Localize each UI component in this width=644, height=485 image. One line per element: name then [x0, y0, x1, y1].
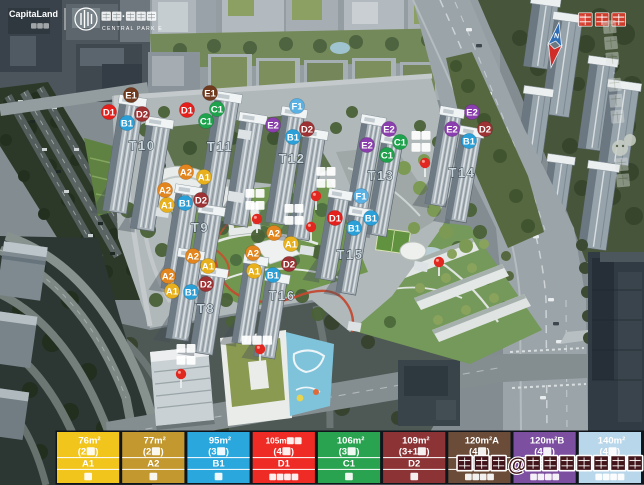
svg-text:E1: E1 [125, 90, 137, 101]
svg-text:(4: (4 [273, 447, 282, 458]
svg-text:): ) [291, 447, 294, 458]
svg-text:F1: F1 [291, 101, 303, 112]
svg-text:D2: D2 [408, 459, 420, 470]
svg-text:A2: A2 [268, 228, 280, 239]
svg-text:E2: E2 [361, 140, 373, 151]
svg-text:B1: B1 [287, 132, 300, 143]
svg-text:A2: A2 [162, 271, 174, 282]
svg-text:D2: D2 [301, 124, 313, 135]
svg-text:95m²: 95m² [209, 436, 231, 447]
svg-text:A1: A1 [202, 261, 215, 272]
svg-text:(3: (3 [208, 447, 216, 458]
svg-text:D2: D2 [283, 259, 295, 270]
svg-text:T15: T15 [337, 247, 364, 262]
svg-text:CENTRAL PARK E: CENTRAL PARK E [102, 26, 163, 32]
svg-text:C1: C1 [200, 116, 213, 127]
svg-text:C1: C1 [343, 459, 356, 470]
svg-text:T13: T13 [368, 168, 395, 183]
svg-text:109m²: 109m² [402, 436, 429, 447]
svg-text:106m²: 106m² [337, 436, 364, 447]
svg-text:@: @ [508, 455, 527, 476]
svg-text:120m²A: 120m²A [465, 436, 499, 447]
svg-text:E1: E1 [204, 88, 216, 99]
svg-text:B1: B1 [365, 213, 378, 224]
svg-text:E2: E2 [446, 124, 458, 135]
svg-text:D1: D1 [181, 105, 194, 116]
svg-text:B1: B1 [179, 198, 192, 209]
svg-text:E2: E2 [466, 107, 478, 118]
svg-text:): ) [95, 447, 98, 458]
svg-text:B1: B1 [121, 118, 134, 129]
svg-text:B1: B1 [213, 459, 226, 470]
svg-text:D2: D2 [195, 195, 207, 206]
svg-text:A2: A2 [147, 459, 159, 470]
svg-text:D1: D1 [278, 459, 291, 470]
svg-text:T10: T10 [129, 138, 156, 153]
svg-text:E2: E2 [383, 124, 395, 135]
svg-text:B1: B1 [463, 136, 476, 147]
svg-text:·: · [122, 11, 126, 23]
svg-text:A2: A2 [247, 248, 259, 259]
svg-text:T9: T9 [191, 220, 209, 235]
svg-text:C1: C1 [394, 137, 407, 148]
svg-text:C1: C1 [211, 104, 224, 115]
svg-text:T16: T16 [269, 288, 296, 303]
svg-text:A1: A1 [285, 239, 298, 250]
svg-text:E2: E2 [267, 120, 279, 131]
svg-text:(2: (2 [78, 447, 86, 458]
svg-text:B1: B1 [267, 270, 280, 281]
svg-text:A1: A1 [248, 266, 261, 277]
svg-text:D1: D1 [103, 107, 116, 118]
svg-text:77m²: 77m² [144, 436, 166, 447]
svg-text:T12: T12 [279, 151, 306, 166]
svg-text:): ) [226, 447, 229, 458]
svg-text:D2: D2 [136, 109, 148, 120]
svg-text:D2: D2 [200, 279, 212, 290]
svg-text:): ) [161, 447, 164, 458]
svg-text:(3+1: (3+1 [399, 447, 419, 458]
svg-text:(2: (2 [143, 447, 151, 458]
svg-text:T8: T8 [197, 301, 215, 316]
svg-text:C1: C1 [381, 150, 394, 161]
svg-text:A1: A1 [82, 459, 95, 470]
svg-text:CapitaLand: CapitaLand [9, 9, 58, 19]
svg-text:): ) [356, 447, 359, 458]
svg-text:A2: A2 [187, 251, 199, 262]
svg-text:A1: A1 [166, 286, 179, 297]
svg-text:B1: B1 [348, 223, 361, 234]
svg-text:B1: B1 [185, 287, 198, 298]
svg-text:A1: A1 [198, 172, 211, 183]
svg-text:76m²: 76m² [78, 436, 100, 447]
svg-text:120m²B: 120m²B [530, 436, 564, 447]
svg-text:A2: A2 [159, 185, 171, 196]
svg-text:T14: T14 [449, 165, 476, 180]
svg-text:): ) [426, 447, 429, 458]
svg-text:D1: D1 [329, 213, 342, 224]
svg-text:(3: (3 [339, 447, 347, 458]
svg-text:105m²: 105m² [266, 437, 290, 446]
svg-text:140m²: 140m² [598, 436, 625, 447]
svg-text:A2: A2 [180, 167, 192, 178]
svg-text:F1: F1 [355, 191, 367, 202]
svg-text:D2: D2 [479, 124, 491, 135]
svg-text:T11: T11 [207, 139, 233, 154]
svg-text:A1: A1 [161, 200, 174, 211]
